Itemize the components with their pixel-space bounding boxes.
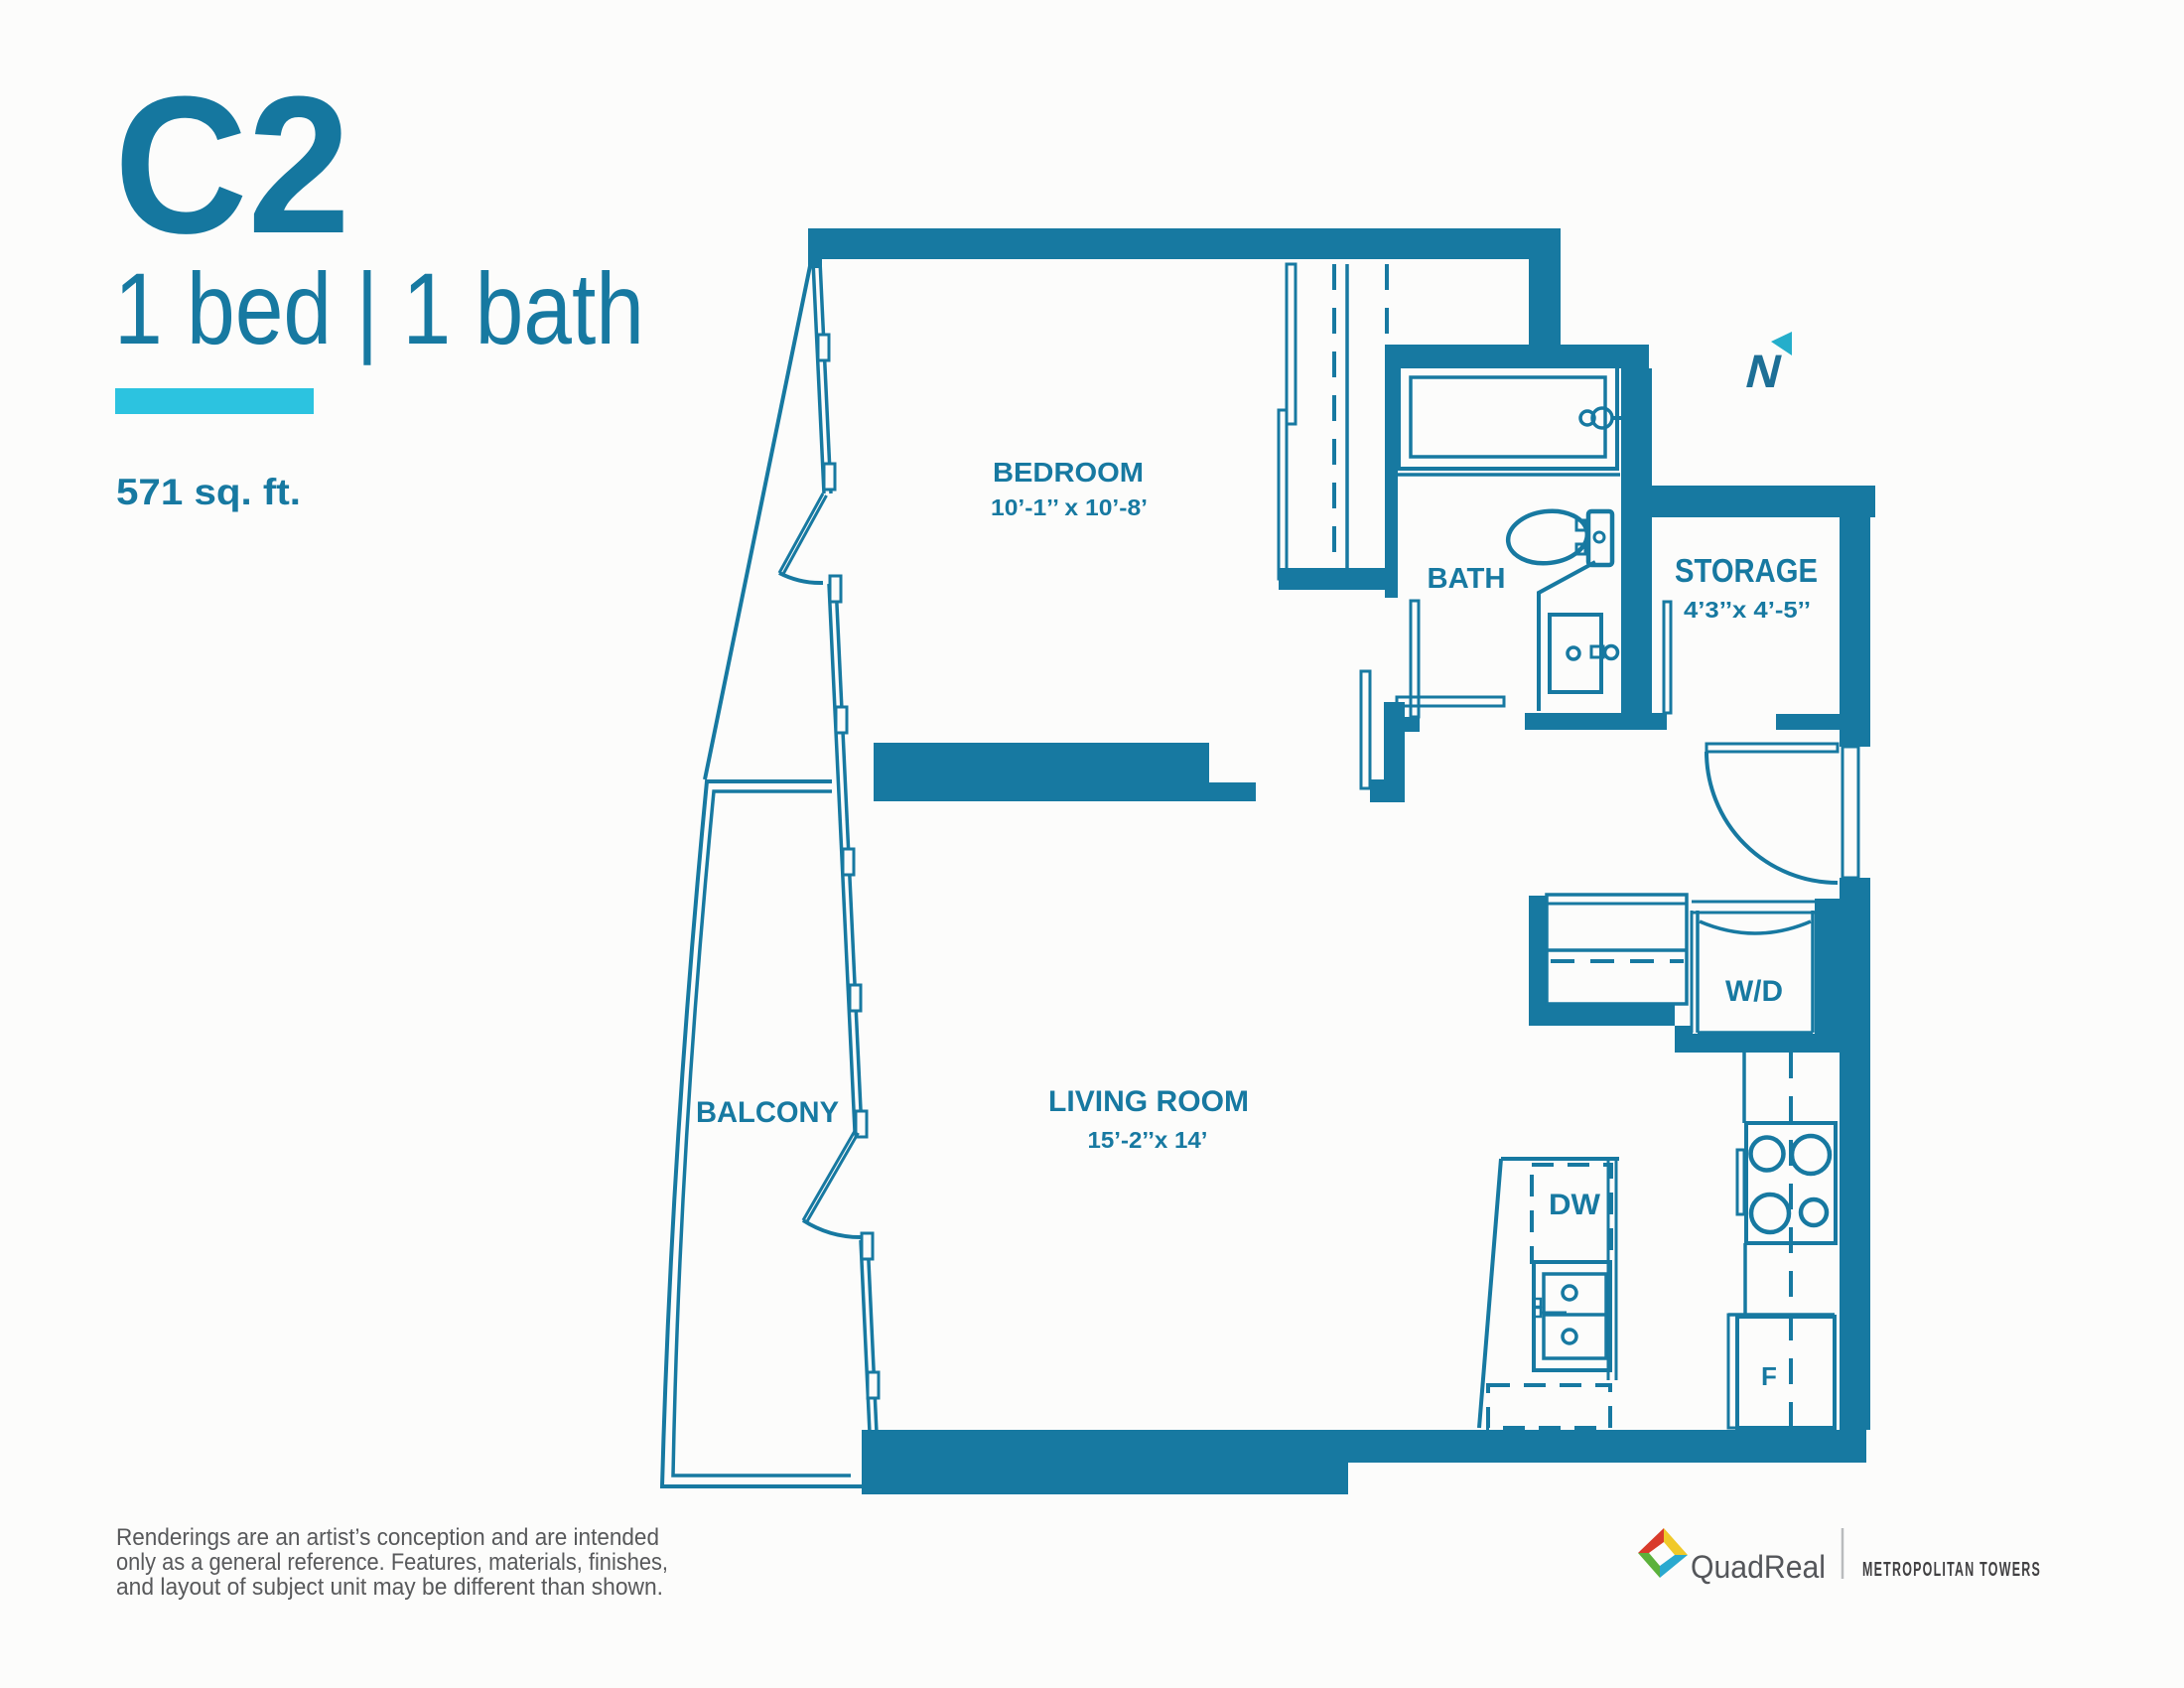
svg-text:1 bed | 1 bath: 1 bed | 1 bath: [114, 252, 644, 365]
svg-text:10’-1’’ x 10’-8’: 10’-1’’ x 10’-8’: [991, 494, 1148, 520]
svg-text:571 sq. ft.: 571 sq. ft.: [116, 472, 301, 512]
svg-text:LIVING ROOM: LIVING ROOM: [1048, 1085, 1249, 1118]
svg-text:METROPOLITAN TOWERS: METROPOLITAN TOWERS: [1862, 1559, 2041, 1581]
svg-text:15’-2’’x 14’: 15’-2’’x 14’: [1088, 1127, 1208, 1153]
svg-text:4’3’’x 4’-5’’: 4’3’’x 4’-5’’: [1684, 597, 1811, 623]
svg-text:F: F: [1761, 1361, 1777, 1391]
svg-text:C2: C2: [114, 56, 350, 274]
svg-text:STORAGE: STORAGE: [1675, 552, 1818, 589]
svg-text:W/D: W/D: [1725, 975, 1783, 1008]
svg-text:BEDROOM: BEDROOM: [993, 457, 1144, 488]
svg-text:DW: DW: [1549, 1189, 1601, 1221]
svg-text:BATH: BATH: [1428, 563, 1506, 595]
svg-text:only as a general reference. F: only as a general reference. Features, m…: [116, 1549, 668, 1576]
svg-text:BALCONY: BALCONY: [696, 1096, 839, 1129]
svg-text:Renderings are an artist’s con: Renderings are an artist’s conception an…: [116, 1524, 659, 1551]
svg-text:and layout of subject unit may: and layout of subject unit may be differ…: [116, 1574, 663, 1601]
svg-text:QuadReal: QuadReal: [1691, 1549, 1826, 1585]
